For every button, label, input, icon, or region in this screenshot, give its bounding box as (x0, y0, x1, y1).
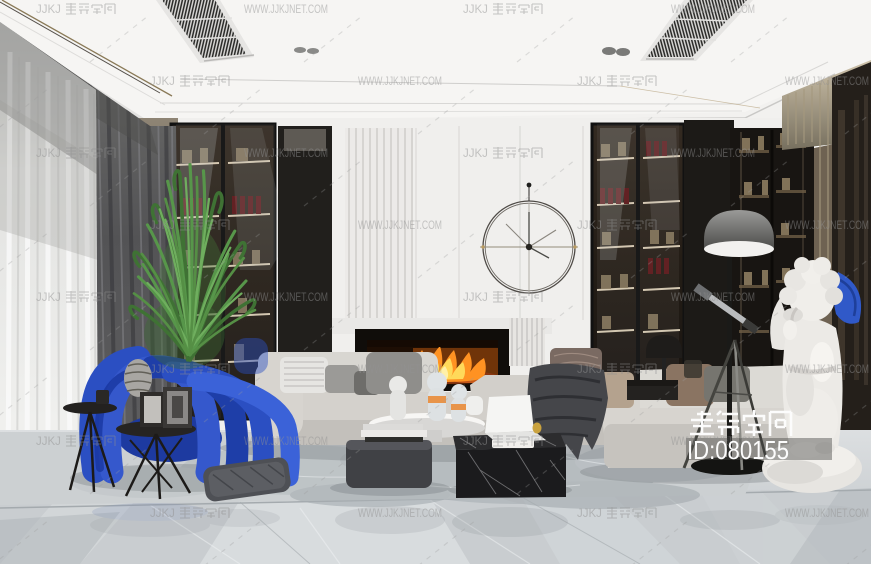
svg-text:ID:080155: ID:080155 (687, 435, 789, 465)
